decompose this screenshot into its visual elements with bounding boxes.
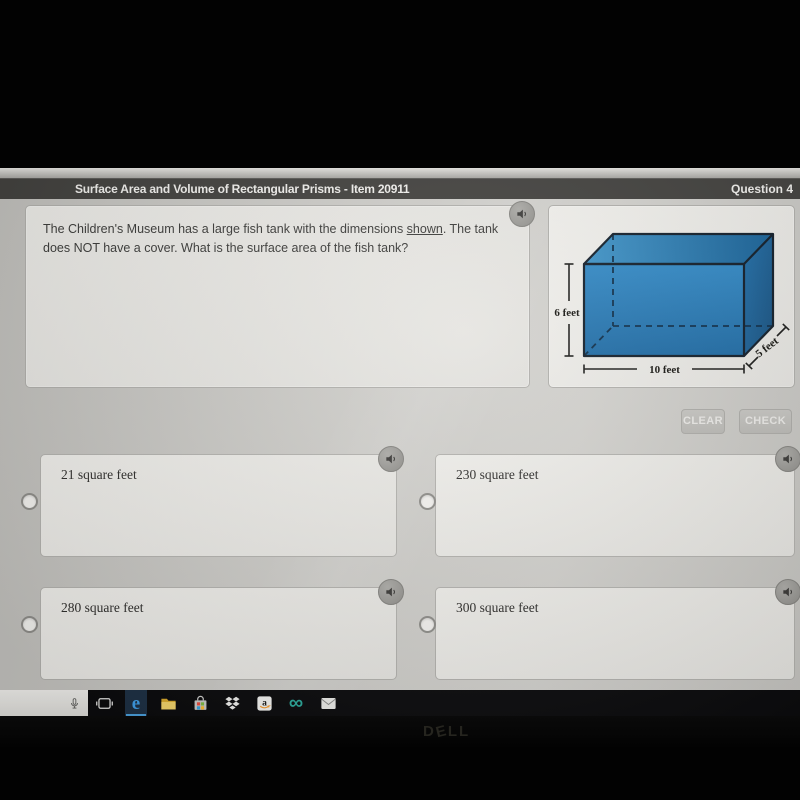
file-explorer-icon	[159, 694, 178, 713]
dropbox-icon	[223, 694, 242, 713]
answer-3-audio-button[interactable]	[378, 579, 404, 605]
answer-3-label: 280 square feet	[61, 600, 143, 616]
microphone-icon	[68, 697, 81, 710]
screen: Surface Area and Volume of Rectangular P…	[0, 168, 800, 716]
length-label: 10 feet	[649, 364, 680, 376]
answer-4-label: 300 square feet	[456, 600, 538, 616]
mail-button[interactable]	[317, 690, 339, 716]
answer-card-3[interactable]: 280 square feet	[40, 587, 397, 680]
answer-1-radio[interactable]	[21, 493, 38, 510]
shown-link[interactable]: shown	[407, 222, 443, 236]
answer-card-4[interactable]: 300 square feet	[435, 587, 795, 680]
question-text: The Children's Museum has a large fish t…	[43, 220, 515, 259]
answer-2-radio[interactable]	[419, 493, 436, 510]
app-header: Surface Area and Volume of Rectangular P…	[0, 178, 800, 199]
dropbox-button[interactable]	[221, 690, 243, 716]
tank-front-face	[584, 264, 744, 356]
answer-2-audio-button[interactable]	[775, 446, 800, 472]
speaker-icon	[384, 585, 398, 599]
amazon-button[interactable]: a	[253, 690, 275, 716]
windows-taskbar: e	[0, 690, 800, 716]
question-counter: Question 4	[731, 182, 793, 196]
quiz-page: The Children's Museum has a large fish t…	[0, 199, 800, 690]
speaker-icon	[515, 207, 529, 221]
dell-letter-l2: L	[459, 723, 470, 740]
screen-top-edge	[0, 168, 800, 178]
amazon-icon: a	[255, 694, 274, 713]
question-panel: The Children's Museum has a large fish t…	[25, 205, 530, 388]
infinity-icon: ∞	[289, 693, 303, 713]
task-view-icon	[95, 694, 114, 713]
answer-1-label: 21 square feet	[61, 467, 137, 483]
dell-logo: DELL	[423, 723, 470, 740]
task-view-button[interactable]	[93, 690, 115, 716]
speaker-icon	[781, 452, 795, 466]
file-explorer-button[interactable]	[157, 690, 179, 716]
infinity-app-button[interactable]: ∞	[285, 690, 307, 716]
answer-2-label: 230 square feet	[456, 467, 538, 483]
question-audio-button[interactable]	[509, 201, 535, 227]
answer-1-audio-button[interactable]	[378, 446, 404, 472]
taskbar-search-box[interactable]	[0, 690, 88, 716]
check-button[interactable]: CHECK	[739, 409, 792, 434]
app-title: Surface Area and Volume of Rectangular P…	[75, 182, 410, 196]
fish-tank-diagram: 6 feet 10 feet	[549, 206, 794, 387]
height-label: 6 feet	[554, 307, 580, 319]
answer-card-2[interactable]: 230 square feet	[435, 454, 795, 557]
photo-black-top	[0, 0, 800, 168]
answer-4-audio-button[interactable]	[775, 579, 800, 605]
edge-browser-button[interactable]: e	[125, 690, 147, 716]
monitor-bezel: DELL	[0, 716, 800, 800]
monitor-photo: Surface Area and Volume of Rectangular P…	[0, 0, 800, 800]
microsoft-store-icon	[191, 694, 210, 713]
clear-button[interactable]: CLEAR	[681, 409, 725, 434]
speaker-icon	[384, 452, 398, 466]
edge-icon: e	[132, 694, 140, 713]
diagram-panel: 6 feet 10 feet	[548, 205, 795, 388]
taskbar-icons: e	[88, 690, 339, 716]
speaker-icon	[781, 585, 795, 599]
answer-4-radio[interactable]	[419, 616, 436, 633]
question-text-before: The Children's Museum has a large fish t…	[43, 222, 407, 236]
answer-card-1[interactable]: 21 square feet	[40, 454, 397, 557]
answer-3-radio[interactable]	[21, 616, 38, 633]
mail-icon	[319, 694, 338, 713]
microsoft-store-button[interactable]	[189, 690, 211, 716]
